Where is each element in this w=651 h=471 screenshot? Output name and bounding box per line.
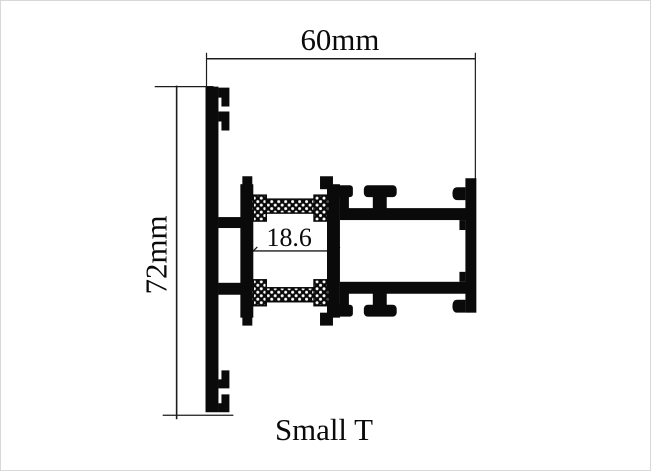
caption: Small T — [275, 413, 373, 447]
profile-spine-top-hook-1 — [218, 88, 229, 107]
profile-solid-sections — [206, 87, 477, 413]
rail-left-cap-stem-top — [340, 195, 349, 210]
dimension-height-label: 72mm — [140, 215, 174, 294]
central-box-tab-top-right — [320, 176, 333, 189]
dimension-width — [207, 53, 476, 179]
thermal-patch-top-right — [314, 195, 327, 221]
profile-spine — [206, 87, 219, 413]
central-box-tab-bottom-left — [242, 314, 252, 326]
profile-spine-bottom-hook-1 — [218, 370, 229, 388]
right-outer-wall — [465, 178, 476, 312]
central-box-tab-top-left — [242, 176, 252, 188]
central-box-tab-bottom-right — [320, 313, 333, 326]
right-wall-top-hook — [452, 187, 465, 200]
right-wall-inner-nub-top — [459, 220, 465, 230]
right-box-bottom-rail — [340, 282, 466, 294]
t-tab-bottom-cap — [364, 305, 397, 317]
drawing-canvas: 60mm 72mm 18.6 — [0, 0, 651, 471]
profile-cross-section-drawing: 60mm 72mm 18.6 — [1, 1, 650, 470]
t-tab-bottom-stem — [373, 293, 387, 306]
thermal-patch-bottom-left — [253, 280, 266, 306]
t-tab-top-stem — [373, 196, 387, 209]
profile-spine-top-hook-2 — [218, 112, 229, 131]
dimension-inner-width-label: 18.6 — [267, 223, 312, 252]
right-box-top-rail — [340, 208, 466, 220]
profile-spine-bottom-hook-2 — [218, 394, 229, 412]
thermal-patch-bottom-right — [314, 280, 327, 306]
thermal-patch-top-left — [253, 195, 266, 221]
t-tab-top-cap — [364, 185, 397, 197]
dimension-width-label: 60mm — [301, 23, 380, 57]
right-wall-inner-nub-bottom — [459, 272, 465, 282]
profile-lower-arm — [218, 283, 242, 295]
right-wall-bottom-hook — [452, 300, 465, 313]
rail-left-cap-stem-bottom — [340, 292, 349, 307]
profile-upper-arm — [218, 217, 242, 228]
